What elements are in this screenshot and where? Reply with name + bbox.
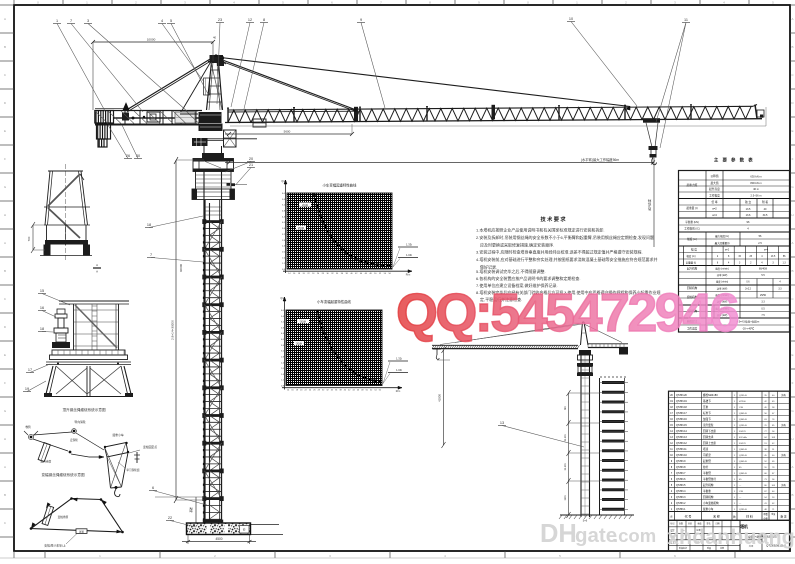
svg-text:最大幅度(m): 最大幅度(m): [715, 234, 729, 238]
svg-text:R/m: R/m: [396, 390, 400, 393]
svg-text:20: 20: [249, 157, 253, 161]
svg-text:5: 5: [170, 19, 172, 23]
svg-text:1.本塔机应按照企业产品使用说明书和有关国家标准规定进行安装: 1.本塔机应按照企业产品使用说明书和有关国家标准规定进行安装和拆卸.: [476, 227, 604, 233]
svg-text:载重小车: 载重小车: [112, 432, 124, 437]
svg-text:Q/t: Q/t: [280, 297, 284, 300]
svg-text:2×2.2: 2×2.2: [745, 288, 752, 291]
svg-text:B: B: [791, 493, 793, 497]
svg-text:4.塔机安装前,应对基础进行平整和夯实处理,并按图纸要求浇筑: 4.塔机安装前,应对基础进行平整和夯实处理,并按图纸要求浇筑混凝土基础等安全措施…: [476, 256, 658, 262]
svg-text:QTZ63.6: QTZ63.6: [676, 478, 686, 481]
svg-text:顶升钢丝绳缠绕系统示意图: 顶升钢丝绳缠绕系统示意图: [62, 407, 106, 412]
svg-text:9: 9: [360, 18, 362, 22]
svg-text:.com: .com: [613, 525, 656, 546]
svg-text:起升高度: 起升高度: [709, 187, 720, 191]
svg-text:起重力矩: 起重力矩: [687, 183, 698, 187]
svg-text:材 料: 材 料: [746, 514, 753, 519]
svg-text:6.各机构的安全装置应按产品说明书的要求调整和定期检查.: 6.各机构的安全装置应按产品说明书的要求调整和定期检查.: [476, 275, 580, 281]
svg-text:QTZ63.7: QTZ63.7: [676, 472, 686, 475]
svg-text:Q235-B: Q235-B: [739, 395, 747, 397]
svg-text:a=4: a=4: [764, 249, 769, 252]
svg-text:加强节: 加强节: [703, 417, 711, 421]
svg-text:630 kN·m: 630 kN·m: [750, 175, 761, 179]
svg-text:Q345-B: Q345-B: [739, 461, 747, 463]
svg-text:顶升套架: 顶升套架: [703, 423, 714, 427]
svg-text:Q345-B: Q345-B: [739, 413, 747, 415]
svg-text:起重臂: 起重臂: [703, 459, 711, 463]
svg-text:基础节: 基础节: [703, 399, 711, 403]
svg-text:塔顶: 塔顶: [703, 447, 709, 451]
svg-text:40000: 40000: [179, 263, 183, 272]
svg-text:1: 1: [56, 19, 58, 23]
svg-text:F: F: [4, 157, 6, 161]
svg-text:2.5~56 m: 2.5~56 m: [751, 194, 762, 198]
svg-text:Q235-B: Q235-B: [739, 455, 747, 457]
svg-text:张紧: 张紧: [79, 529, 85, 533]
svg-text:司机室: 司机室: [703, 453, 711, 457]
svg-text:变幅固定点: 变幅固定点: [143, 445, 157, 449]
svg-text:6: 6: [152, 486, 154, 490]
svg-text:1.33t: 1.33t: [406, 243, 412, 247]
svg-text:A: A: [4, 17, 6, 21]
svg-text:4.5×4.5(轨距×轨距)m: 4.5×4.5(轨距×轨距)m: [737, 320, 760, 324]
svg-text:起升机构: 起升机构: [703, 483, 714, 487]
svg-text:13.5: 13.5: [746, 208, 751, 211]
svg-text:A: A: [4, 241, 6, 245]
svg-text:变幅(至小车架)上: 变幅(至小车架)上: [44, 544, 66, 548]
svg-text:800 kN·m: 800 kN·m: [750, 181, 761, 185]
svg-text:22: 22: [168, 516, 172, 520]
svg-text:工作级别 (/C): 工作级别 (/C): [684, 227, 700, 231]
svg-text:回转支承: 回转支承: [703, 435, 714, 439]
svg-text:a=4: a=4: [712, 213, 717, 217]
svg-text:xhdanhuang: xhdanhuang: [667, 525, 795, 549]
svg-text:5×6: 5×6: [583, 519, 588, 523]
svg-text:E: E: [4, 353, 6, 357]
svg-text:41000: 41000: [438, 394, 442, 402]
svg-text:回转上支座: 回转上支座: [703, 441, 716, 445]
svg-text:独 立: 独 立: [745, 200, 751, 204]
svg-text:5.塔机安装调试完毕之后,不得随意调整.: 5.塔机安装调试完毕之后,不得随意调整.: [476, 268, 546, 274]
svg-text:1.04t: 1.04t: [406, 253, 412, 257]
svg-text:QTZ63.10: QTZ63.10: [676, 454, 687, 457]
svg-text:10000: 10000: [147, 38, 156, 42]
svg-text:H: H: [4, 437, 6, 441]
svg-text:ZG270: ZG270: [739, 431, 746, 433]
svg-text:13: 13: [500, 421, 504, 425]
svg-text:名 称: 名 称: [713, 514, 720, 519]
svg-text:QQ:545472946: QQ:545472946: [396, 283, 739, 343]
svg-text:1.04t: 1.04t: [396, 368, 402, 372]
svg-text:变幅卷筒: 变幅卷筒: [58, 515, 69, 519]
svg-text:速度 (m/min): 速度 (m/min): [715, 267, 729, 271]
svg-text:Q345-B: Q345-B: [739, 449, 747, 451]
svg-text:基础: 基础: [189, 507, 193, 513]
svg-text:4500: 4500: [215, 537, 222, 541]
svg-text:40 m: 40 m: [753, 187, 759, 191]
svg-text:12: 12: [248, 18, 252, 22]
svg-text:7: 7: [150, 253, 152, 257]
svg-text:34.5: 34.5: [763, 214, 768, 217]
svg-text:gate: gate: [575, 524, 617, 547]
svg-text:QTZ63.19: QTZ63.19: [676, 400, 687, 403]
svg-text:功率 (kW): 功率 (kW): [717, 273, 728, 277]
svg-text:E: E: [4, 129, 6, 133]
svg-text:2.8×14=39200: 2.8×14=39200: [171, 320, 175, 340]
svg-text:3: 3: [87, 19, 89, 23]
svg-text:回转机构: 回转机构: [703, 495, 714, 499]
svg-text:8: 8: [263, 18, 265, 22]
svg-text:A: A: [96, 263, 98, 267]
svg-text:备 注: 备 注: [780, 515, 787, 519]
svg-text:18: 18: [147, 223, 151, 227]
svg-text:HT200: HT200: [739, 401, 746, 403]
svg-text:A: A: [791, 241, 793, 245]
svg-text:QTZ63.8: QTZ63.8: [676, 466, 686, 469]
svg-text:a=2: a=2: [725, 249, 730, 252]
svg-text:10: 10: [569, 17, 573, 21]
svg-text:小车变幅机构: 小车变幅机构: [703, 501, 719, 505]
svg-text:16: 16: [40, 306, 44, 310]
svg-text:13.5: 13.5: [771, 256, 776, 258]
svg-text:标准节: 标准节: [703, 411, 711, 415]
svg-text:42CrMo: 42CrMo: [739, 436, 748, 439]
svg-text:A: A: [96, 270, 98, 274]
svg-text:H: H: [791, 213, 793, 217]
svg-text:2倍率: 2倍率: [300, 319, 307, 323]
svg-text:ZG270: ZG270: [739, 443, 746, 445]
svg-text:(水平臂)最大工作幅度56m: (水平臂)最大工作幅度56m: [581, 157, 620, 162]
svg-text:幅度 (m): 幅度 (m): [686, 254, 695, 258]
svg-text:Q345-B: Q345-B: [739, 473, 747, 475]
svg-text:7: 7: [70, 19, 72, 23]
svg-text:卷筒: 卷筒: [25, 425, 31, 429]
svg-text:小车变幅起重特性曲线: 小车变幅起重特性曲线: [323, 183, 358, 188]
svg-text:幅 度: 幅 度: [691, 248, 697, 252]
svg-text:DH: DH: [540, 520, 577, 548]
svg-text:QTZ63.14: QTZ63.14: [676, 430, 687, 433]
svg-text:A: A: [4, 465, 6, 469]
svg-text:80/40/8: 80/40/8: [759, 268, 768, 271]
svg-text:主 要 参 数 表: 主 要 参 数 表: [714, 157, 754, 164]
svg-text:Q/t: Q/t: [281, 180, 285, 183]
svg-text:E: E: [791, 129, 793, 133]
svg-text:QTZ63.16: QTZ63.16: [676, 418, 687, 421]
svg-text:A: A: [791, 465, 793, 469]
svg-text:R/m: R/m: [406, 274, 410, 277]
svg-text:QTZ63.11: QTZ63.11: [676, 448, 687, 451]
svg-text:载重小车: 载重小车: [703, 507, 714, 511]
svg-text:H: H: [791, 437, 793, 441]
svg-text:QTZ63.20: QTZ63.20: [676, 394, 687, 397]
svg-text:牵引滑轮组: 牵引滑轮组: [127, 468, 140, 472]
svg-text:螺栓M24×80: 螺栓M24×80: [703, 393, 718, 397]
svg-text:QTZ63.18: QTZ63.18: [676, 406, 687, 409]
svg-text:定滑轮: 定滑轮: [70, 438, 78, 442]
svg-text:回转下支座: 回转下支座: [703, 429, 716, 433]
svg-text:2.安装及拆卸时,吊装用钢丝绳的安全系数不小于6,平衡臂和起: 2.安装及拆卸时,吊装用钢丝绳的安全系数不小于6,平衡臂和起重臂,吊装用钢丝绳应…: [476, 234, 654, 240]
svg-text:3.安装过程中,应随时检查塔身垂直度并用经纬仪校准,误差不得: 3.安装过程中,应随时检查塔身垂直度并用经纬仪校准,误差不得超过规定值并严格遵守…: [476, 249, 643, 255]
svg-text:2倍率: 2倍率: [302, 203, 309, 207]
svg-text:Q235-B: Q235-B: [739, 509, 747, 511]
svg-text:25/50: 25/50: [760, 294, 767, 297]
svg-text:技 术 要 求: 技 术 要 求: [540, 215, 566, 223]
svg-text:B: B: [4, 45, 6, 49]
svg-text:QTZ63.5: QTZ63.5: [676, 484, 686, 487]
svg-text:15: 15: [40, 289, 44, 293]
svg-text:导向滑轮: 导向滑轮: [74, 420, 85, 424]
svg-text:B: B: [791, 45, 793, 49]
svg-text:-20~+40℃: -20~+40℃: [742, 328, 754, 331]
svg-text:QTZ63.12: QTZ63.12: [676, 442, 687, 445]
svg-text:40: 40: [213, 36, 217, 40]
svg-text:12m: 12m: [563, 495, 567, 501]
svg-text:倍 率: 倍 率: [711, 200, 717, 204]
svg-text:幅度 (m): 幅度 (m): [687, 237, 697, 241]
svg-text:代 号: 代 号: [685, 514, 692, 519]
svg-text:附 着: 附 着: [762, 200, 768, 204]
svg-text:B: B: [791, 269, 793, 273]
svg-text:平衡臂: 平衡臂: [703, 471, 711, 475]
svg-text:E: E: [791, 353, 793, 357]
svg-text:F: F: [792, 157, 794, 161]
svg-text:700: 700: [27, 236, 31, 241]
svg-text:起升高度: 起升高度: [647, 199, 652, 211]
svg-text:起升机构: 起升机构: [687, 267, 698, 271]
svg-text:QTZ63.1: QTZ63.1: [676, 508, 686, 511]
svg-text:11.2m: 11.2m: [563, 463, 567, 471]
svg-text:起重量 (t): 起重量 (t): [686, 261, 696, 265]
svg-text:Q235-B: Q235-B: [739, 425, 747, 427]
svg-text:QTZ63.2: QTZ63.2: [676, 502, 686, 505]
svg-text:起重量 (t): 起重量 (t): [686, 206, 697, 210]
svg-text:1.32t: 1.32t: [396, 357, 402, 361]
svg-text:13.6: 13.6: [746, 214, 751, 217]
svg-text:变幅钢丝绳缠绕系统示意图: 变幅钢丝绳缠绕系统示意图: [41, 472, 85, 477]
svg-text:最大起重量(t): 最大起重量(t): [715, 241, 730, 245]
svg-text:a=2: a=2: [712, 207, 717, 211]
svg-text:平衡重: 平衡重: [703, 489, 711, 493]
svg-text:4: 4: [161, 19, 163, 23]
svg-text:公称值: 公称值: [710, 174, 718, 178]
svg-text:压重: 压重: [703, 405, 709, 409]
svg-text:砼: 砼: [243, 528, 246, 532]
svg-text:平衡重 (kN): 平衡重 (kN): [685, 220, 699, 224]
svg-text:17: 17: [28, 368, 32, 372]
svg-text:工作幅度: 工作幅度: [709, 194, 720, 198]
svg-text:2.5: 2.5: [758, 242, 762, 245]
svg-text:QTZ63.13: QTZ63.13: [676, 436, 687, 439]
svg-text:小车变幅起重特性曲线: 小车变幅起重特性曲线: [317, 299, 352, 304]
svg-text:拉杆: 拉杆: [703, 465, 709, 469]
svg-text:2倍率: 2倍率: [296, 341, 303, 345]
svg-text:应及时更换或采取修复措施,确定安装顺序.: 应及时更换或采取修复措施,确定安装顺序.: [480, 242, 554, 248]
svg-text:5600: 5600: [284, 130, 291, 134]
svg-text:18: 18: [40, 327, 44, 331]
svg-text:11.2m: 11.2m: [563, 434, 567, 442]
svg-text:起升卷筒: 起升卷筒: [41, 460, 52, 464]
svg-text:F: F: [4, 381, 6, 385]
svg-text:B: B: [4, 269, 6, 273]
svg-text:最大值: 最大值: [710, 181, 718, 185]
svg-text:11: 11: [684, 18, 688, 22]
svg-text:QTZ63.4: QTZ63.4: [676, 490, 686, 493]
svg-text:F: F: [792, 381, 794, 385]
svg-text:QTZ63.9: QTZ63.9: [676, 460, 686, 463]
svg-text:23: 23: [218, 18, 222, 22]
svg-text:21: 21: [249, 163, 253, 167]
svg-text:QTZ63.15: QTZ63.15: [676, 424, 687, 427]
svg-text:QTZ63.3: QTZ63.3: [676, 496, 686, 499]
svg-text:H: H: [4, 213, 6, 217]
svg-text:B: B: [4, 493, 6, 497]
svg-text:QTZ63.17: QTZ63.17: [676, 412, 687, 415]
svg-text:Q345-B: Q345-B: [739, 419, 747, 421]
svg-text:平衡臂拉杆: 平衡臂拉杆: [703, 477, 716, 481]
svg-text:A: A: [791, 17, 793, 21]
svg-text:2倍率: 2倍率: [298, 226, 305, 230]
